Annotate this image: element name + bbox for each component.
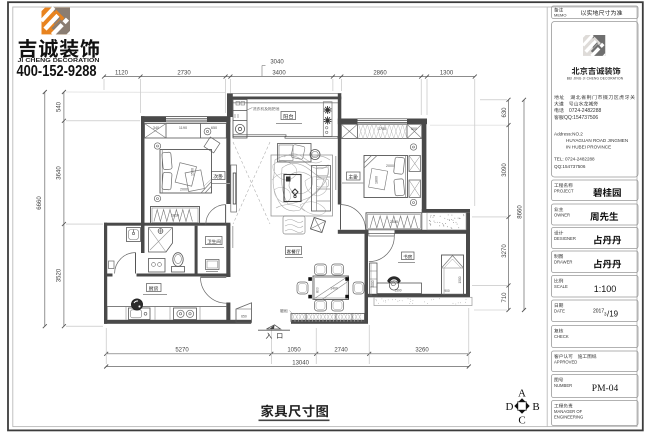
svg-text:2000: 2000 [386, 164, 394, 168]
svg-text:MANAGER OF: MANAGER OF [554, 409, 583, 414]
svg-text:TEL: 0724-2482288: TEL: 0724-2482288 [554, 157, 595, 162]
svg-text:A: A [518, 388, 526, 400]
svg-text:710: 710 [502, 292, 508, 303]
svg-text:1300: 1300 [440, 71, 454, 77]
svg-text:1120: 1120 [115, 71, 129, 77]
svg-text:D: D [506, 401, 514, 413]
svg-text:8660: 8660 [518, 205, 524, 219]
svg-text:0724-2482288: 0724-2482288 [569, 108, 601, 114]
svg-text:540: 540 [56, 101, 62, 112]
svg-text:BEI JING JI CHENG DECORATION: BEI JING JI CHENG DECORATION [567, 77, 624, 81]
svg-text:APPROVED: APPROVED [554, 360, 577, 365]
svg-text:Address:NO.2: Address:NO.2 [554, 132, 583, 137]
svg-text:2000: 2000 [371, 280, 375, 287]
svg-text:1050: 1050 [287, 348, 301, 354]
svg-text:1190: 1190 [179, 126, 187, 130]
svg-text:3090: 3090 [502, 163, 508, 177]
svg-text:1800: 1800 [375, 176, 379, 184]
svg-text:SCALE: SCALE [554, 284, 568, 289]
svg-text:3520: 3520 [56, 268, 62, 282]
svg-text:13040: 13040 [292, 360, 309, 366]
svg-text:2017: 2017 [593, 309, 604, 315]
svg-text:PM-04: PM-04 [592, 384, 619, 394]
svg-text:1:100: 1:100 [594, 284, 617, 294]
svg-text:B: B [532, 401, 539, 413]
svg-text:5270: 5270 [175, 348, 189, 354]
svg-text:6660: 6660 [37, 196, 43, 210]
svg-text:340: 340 [153, 126, 159, 130]
svg-text:2000: 2000 [180, 188, 188, 192]
svg-text:1500: 1500 [394, 289, 401, 293]
svg-text:QQ:154737506: QQ:154737506 [564, 115, 598, 121]
svg-text:1810: 1810 [171, 214, 179, 218]
svg-text:OWNER: OWNER [554, 213, 570, 218]
svg-text:MEMO: MEMO [554, 13, 566, 18]
svg-text:1500: 1500 [191, 168, 195, 176]
svg-text:DATE: DATE [554, 309, 565, 314]
svg-text:1700: 1700 [378, 127, 386, 131]
svg-text:2860: 2860 [373, 71, 387, 77]
svg-text:NUMBER: NUMBER [554, 383, 572, 388]
svg-text:1500: 1500 [458, 276, 462, 283]
svg-text:630: 630 [502, 107, 508, 118]
svg-text:DRAWER: DRAWER [554, 260, 572, 265]
svg-text:QQ:154737506: QQ:154737506 [554, 164, 586, 169]
svg-text:/19: /19 [607, 310, 619, 319]
svg-text:3640: 3640 [56, 166, 62, 180]
svg-text:PROJECT: PROJECT [554, 189, 574, 194]
svg-text:3260: 3260 [415, 348, 429, 354]
svg-text:2730: 2730 [177, 71, 191, 77]
svg-text:C: C [518, 415, 525, 427]
svg-text:IN HUBEI PROVINCE: IN HUBEI PROVINCE [566, 145, 611, 150]
svg-text:DESIGNER: DESIGNER [554, 236, 576, 241]
svg-text:2000: 2000 [390, 220, 398, 224]
svg-text:3270: 3270 [502, 244, 508, 258]
svg-text:1400: 1400 [330, 287, 338, 291]
svg-text:ENGINEERING: ENGINEERING [554, 415, 583, 420]
svg-text:800: 800 [316, 287, 320, 293]
svg-text:3400: 3400 [272, 71, 286, 77]
svg-text:3040: 3040 [270, 60, 284, 66]
svg-text:900: 900 [444, 289, 450, 293]
svg-text:650: 650 [241, 315, 247, 319]
svg-text:CHECK: CHECK [554, 334, 569, 339]
svg-text:2740: 2740 [334, 348, 348, 354]
svg-text:400-152-9288: 400-152-9288 [17, 63, 97, 80]
svg-text:500: 500 [411, 127, 417, 131]
svg-text:650: 650 [211, 126, 217, 130]
svg-text:HUYAGUAN ROAD JINGMEN: HUYAGUAN ROAD JINGMEN [566, 138, 628, 143]
